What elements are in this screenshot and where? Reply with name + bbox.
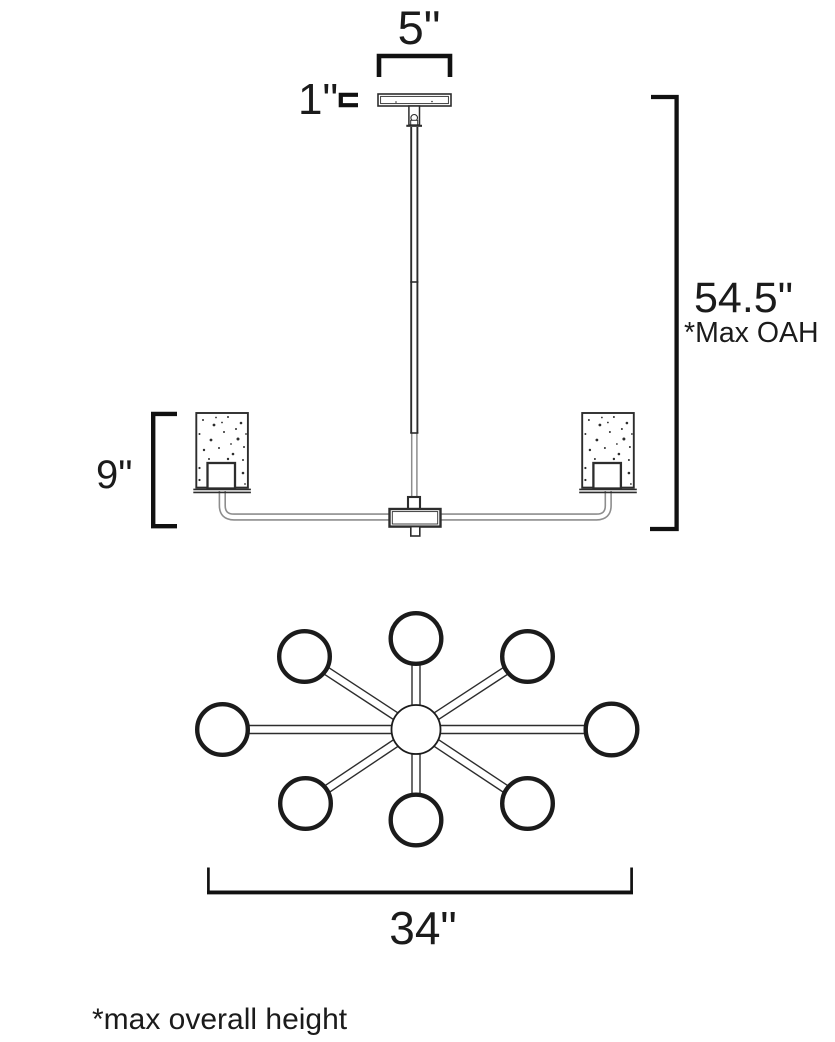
- dim-shade-height: 9": [96, 414, 177, 526]
- plan-view: [197, 613, 637, 845]
- dim-canopy-width-label: 5": [398, 1, 441, 54]
- dim-canopy-height: 1": [298, 75, 358, 124]
- dim-canopy-height-label: 1": [298, 75, 338, 124]
- shade-socket: [208, 463, 236, 489]
- plan-center-hub: [392, 705, 441, 754]
- globe-top-left: [279, 631, 330, 682]
- center-hub: [390, 509, 441, 527]
- footnote-max-overall-height: *max overall height: [92, 1003, 348, 1036]
- fixture-dimension-diagram: 5" 1" 54.5" *Max OAH 9": [0, 0, 835, 1042]
- hub-collar: [408, 497, 420, 509]
- globe-left: [197, 704, 248, 755]
- shade-left: [193, 413, 251, 492]
- globe-top: [391, 613, 442, 664]
- dim-shade-height-label: 9": [96, 453, 132, 497]
- globe-top-right: [502, 631, 553, 682]
- elevation-view: [193, 94, 637, 536]
- stem-rod: [410, 127, 418, 499]
- globe-bottom-left: [280, 778, 331, 829]
- dim-max-overall-height: 54.5" *Max OAH: [650, 97, 819, 529]
- dim-max-overall-height-note: *Max OAH: [684, 317, 819, 349]
- fixture-dimension-diagram-page: 5" 1" 54.5" *Max OAH 9": [0, 0, 835, 1042]
- globe-bottom: [391, 795, 442, 846]
- shade-right: [579, 413, 637, 492]
- canopy: [378, 94, 451, 106]
- hub-finial: [411, 527, 420, 536]
- globe-right: [586, 704, 638, 756]
- dim-max-overall-height-label: 54.5": [694, 274, 793, 322]
- canopy-swivel: [406, 106, 422, 126]
- dim-canopy-width: 5": [379, 1, 450, 77]
- dim-fixture-width: 34": [207, 868, 633, 955]
- dim-fixture-width-label: 34": [389, 902, 457, 954]
- globe-bottom-right: [502, 778, 553, 829]
